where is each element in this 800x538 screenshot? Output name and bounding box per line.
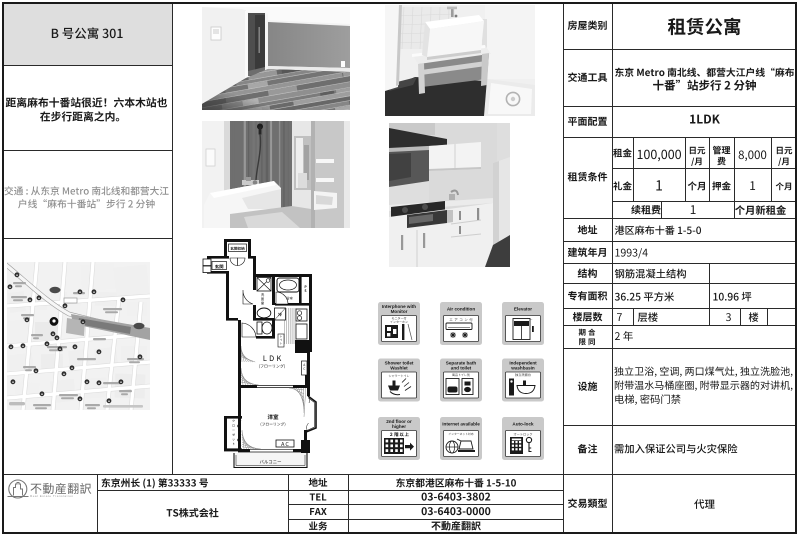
svg-text:Real Estate Translation: Real Estate Translation (30, 494, 74, 498)
